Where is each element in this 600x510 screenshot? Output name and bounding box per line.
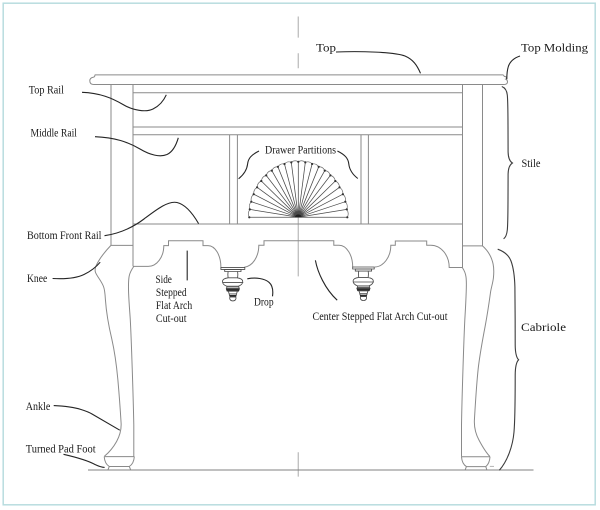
- svg-text:Drop: Drop: [254, 295, 274, 309]
- svg-text:Flat Arch: Flat Arch: [156, 298, 192, 312]
- svg-text:Ankle: Ankle: [26, 399, 51, 413]
- svg-text:Turned Pad Foot: Turned Pad Foot: [26, 442, 97, 456]
- svg-text:Cabriole: Cabriole: [521, 320, 566, 334]
- svg-text:Stepped: Stepped: [156, 285, 187, 299]
- svg-text:Side: Side: [156, 272, 172, 286]
- svg-text:Top: Top: [316, 41, 336, 55]
- svg-text:Center Stepped Flat Arch Cut-o: Center Stepped Flat Arch Cut-out: [313, 309, 449, 323]
- svg-text:Top Rail: Top Rail: [29, 83, 65, 97]
- svg-text:Bottom Front Rail: Bottom Front Rail: [27, 228, 102, 242]
- svg-text:Stile: Stile: [522, 156, 541, 170]
- svg-text:Cut-out: Cut-out: [156, 311, 187, 325]
- svg-text:Knee: Knee: [27, 271, 47, 285]
- svg-text:Drawer Partitions: Drawer Partitions: [265, 143, 336, 157]
- svg-text:Top Molding: Top Molding: [521, 41, 588, 55]
- svg-text:Middle Rail: Middle Rail: [31, 126, 78, 140]
